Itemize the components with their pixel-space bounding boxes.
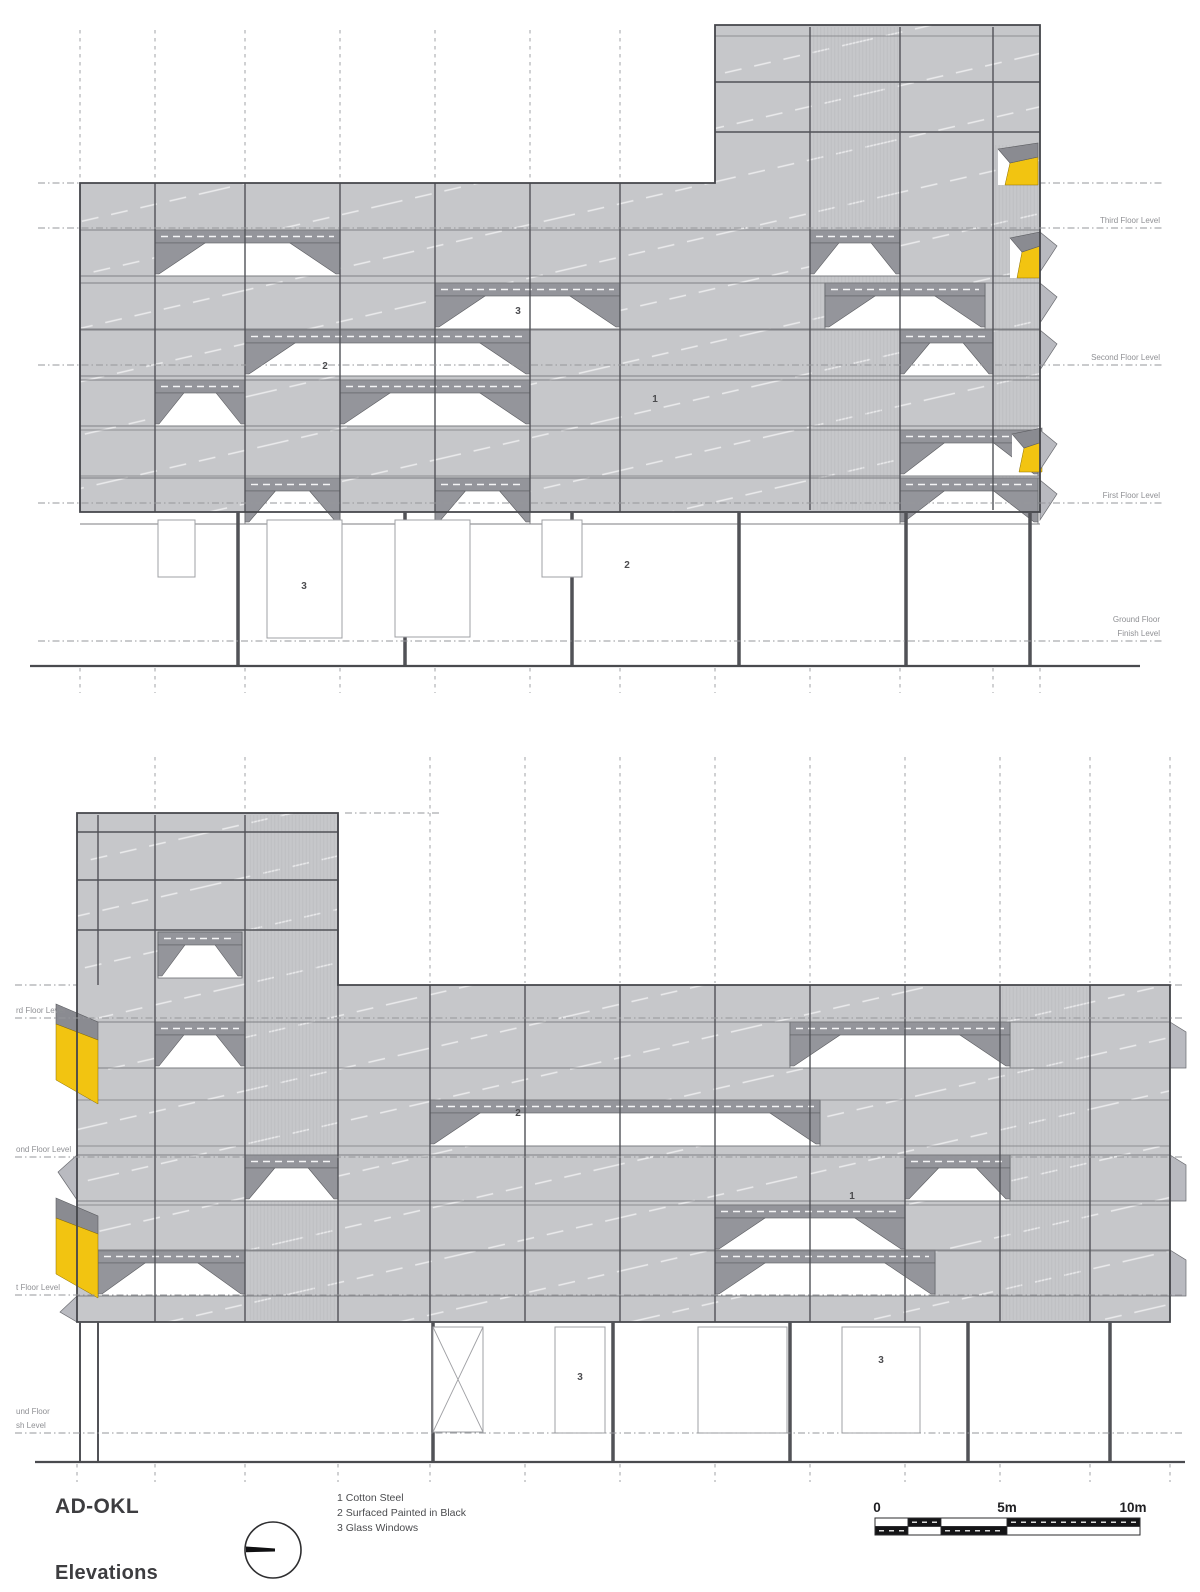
north-symbol: [245, 1522, 301, 1578]
scale-bar: 0 5m 10m: [873, 1500, 1146, 1535]
material-annotation: 3: [878, 1355, 884, 1366]
floor-level-label: Finish Level: [1117, 629, 1160, 638]
legend-item-2: 2 Surfaced Painted in Black: [337, 1507, 467, 1519]
ground-window: [395, 520, 470, 637]
facade-hatch: [1002, 987, 1088, 1320]
material-annotation: 3: [515, 306, 521, 317]
edge-fin: [60, 1296, 77, 1322]
material-annotation: 2: [624, 560, 630, 571]
ground-column: [79, 1322, 81, 1462]
drawing-sheet: Third Floor LevelSecond Floor LevelFirst…: [0, 0, 1200, 1592]
sheet-title: Elevations: [55, 1562, 158, 1584]
material-annotation: 1: [849, 1191, 855, 1202]
ground-column: [97, 1322, 99, 1462]
ground-column: [1028, 512, 1032, 666]
scale-segment: [941, 1518, 1007, 1527]
material-annotation: 2: [515, 1108, 521, 1119]
material-annotation: 3: [577, 1372, 583, 1383]
edge-fin: [1040, 430, 1057, 470]
elevation-top-group: Third Floor LevelSecond Floor LevelFirst…: [30, 25, 1162, 693]
ground-column: [236, 512, 240, 666]
edge-fin: [1040, 480, 1057, 520]
edge-fin: [1170, 1250, 1186, 1296]
material-legend: 1 Cotton Steel 2 Surfaced Painted in Bla…: [337, 1492, 467, 1534]
floor-level-label: First Floor Level: [1103, 491, 1161, 500]
legend-item-3: 3 Glass Windows: [337, 1522, 418, 1534]
material-annotation: 1: [652, 394, 658, 405]
floor-level-label: Third Floor Level: [1100, 216, 1160, 225]
title-block: AD-OKL Elevations: [55, 1495, 158, 1584]
ground-column: [966, 1322, 970, 1462]
ground-column: [737, 512, 741, 666]
ground-column: [788, 1322, 792, 1462]
scale-label-5m: 5m: [997, 1500, 1017, 1515]
floor-level-label: und Floor: [16, 1407, 50, 1416]
ground-column: [904, 512, 908, 666]
architectural-drawing-svg: Third Floor LevelSecond Floor LevelFirst…: [0, 0, 1200, 1592]
scale-segment: [1007, 1527, 1140, 1536]
scale-segment: [875, 1518, 908, 1527]
ground-window: [267, 520, 342, 638]
elevation-bottom-group: rd Floor Levelond Floor Levelt Floor Lev…: [15, 757, 1186, 1482]
floor-level-label: Second Floor Level: [1091, 353, 1160, 362]
ground-column: [1108, 1322, 1112, 1462]
edge-fin: [1040, 232, 1057, 272]
edge-fin: [1040, 330, 1057, 370]
scale-segment: [908, 1527, 941, 1536]
floor-level-label: ond Floor Level: [16, 1145, 71, 1154]
edge-fin: [1170, 1022, 1186, 1068]
project-title: AD-OKL: [55, 1495, 139, 1518]
edge-fin: [58, 1155, 77, 1200]
facade-hatch: [247, 815, 336, 1320]
legend-item-1: 1 Cotton Steel: [337, 1492, 404, 1504]
edge-fin: [1040, 283, 1057, 323]
floor-level-label: sh Level: [16, 1421, 46, 1430]
ground-column: [611, 1322, 615, 1462]
floor-level-label: t Floor Level: [16, 1283, 60, 1292]
edge-fin: [1170, 1155, 1186, 1201]
floor-level-label: Ground Floor: [1113, 615, 1160, 624]
material-annotation: 3: [301, 581, 307, 592]
ground-window: [158, 520, 195, 577]
floor-level-label: rd Floor Level: [16, 1006, 65, 1015]
scale-label-0: 0: [873, 1500, 881, 1515]
ground-window: [842, 1327, 920, 1433]
scale-label-10m: 10m: [1119, 1500, 1146, 1515]
ground-window: [698, 1327, 787, 1433]
ground-window: [542, 520, 582, 577]
material-annotation: 2: [322, 361, 328, 372]
